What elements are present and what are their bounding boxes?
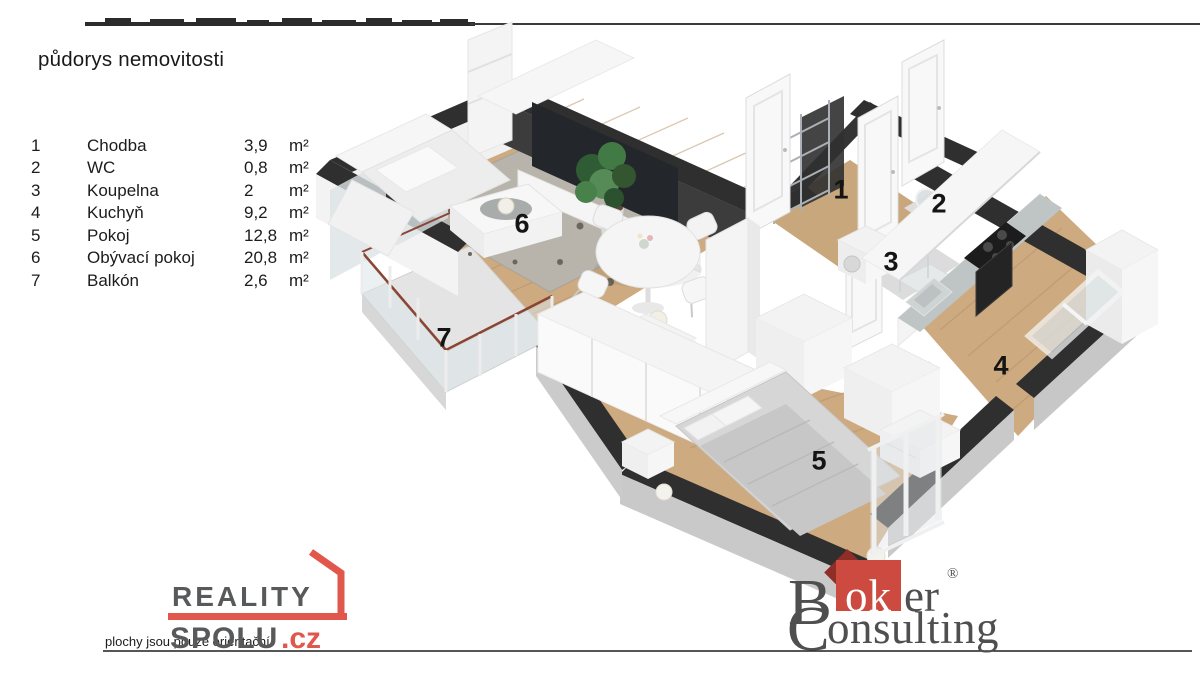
floorplan-page: půdorys nemovitosti 1 Chodba 3,9 m² 2 WC… xyxy=(0,0,1200,675)
legend-room-name: Kuchyň xyxy=(87,203,144,223)
legend-room-unit: m² xyxy=(289,158,309,178)
legend-room-number: 4 xyxy=(31,203,40,223)
dining-table xyxy=(596,216,700,288)
legend-room-name: Chodba xyxy=(87,136,147,156)
legend-row: 4 Kuchyň 9,2 m² xyxy=(0,203,360,225)
legend-room-area: 12,8 xyxy=(244,226,277,246)
legend-row: 3 Koupelna 2 m² xyxy=(0,181,360,203)
legend-room-area: 2 xyxy=(244,181,253,201)
reality-logo-word2: SPOLU xyxy=(170,622,278,656)
registered-trademark-icon: ® xyxy=(947,566,958,583)
washing-machine-door xyxy=(844,256,860,272)
door-panel xyxy=(902,40,944,186)
candle xyxy=(498,198,514,214)
legend-room-number: 3 xyxy=(31,181,40,201)
legend-room-number: 6 xyxy=(31,248,40,268)
legend-room-area: 3,9 xyxy=(244,136,268,156)
room-label-wc: 2 xyxy=(931,189,946,220)
reality-roof-shape xyxy=(311,552,341,618)
room-label-balcony: 7 xyxy=(436,323,451,354)
room-label-kitchen: 4 xyxy=(993,351,1008,382)
legend-room-area: 20,8 xyxy=(244,248,277,268)
legend-room-unit: m² xyxy=(289,271,309,291)
ball-lamp xyxy=(656,484,672,500)
legend-room-name: Pokoj xyxy=(87,226,130,246)
legend-row: 6 Obývací pokoj 20,8 m² xyxy=(0,248,360,270)
legend-row: 2 WC 0,8 m² xyxy=(0,158,360,180)
reality-logo-underline xyxy=(168,613,347,620)
legend-room-unit: m² xyxy=(289,136,309,156)
legend-row: 7 Balkón 2,6 m² xyxy=(0,271,360,293)
reality-logo-word1: REALITY xyxy=(172,581,313,613)
legend-room-name: WC xyxy=(87,158,115,178)
broker-logo-onsulting: onsulting xyxy=(827,602,999,654)
legend-room-number: 7 xyxy=(31,271,40,291)
legend-row: 5 Pokoj 12,8 m² xyxy=(0,226,360,248)
legend-room-name: Balkón xyxy=(87,271,139,291)
room-label-hallway: 1 xyxy=(833,175,848,206)
door-panel xyxy=(746,74,790,236)
reality-logo-tld: .cz xyxy=(281,622,321,656)
legend-room-unit: m² xyxy=(289,181,309,201)
room-label-bedroom: 5 xyxy=(811,446,826,477)
room-label-living-room: 6 xyxy=(514,209,529,240)
floorplan-render xyxy=(0,0,1200,675)
legend-room-name: Obývací pokoj xyxy=(87,248,195,268)
page-title: půdorys nemovitosti xyxy=(38,48,224,72)
legend-room-number: 5 xyxy=(31,226,40,246)
legend-room-name: Koupelna xyxy=(87,181,159,201)
legend-room-area: 9,2 xyxy=(244,203,268,223)
legend-room-unit: m² xyxy=(289,203,309,223)
legend-room-area: 0,8 xyxy=(244,158,268,178)
legend-room-area: 2,6 xyxy=(244,271,268,291)
legend-row: 1 Chodba 3,9 m² xyxy=(0,136,360,158)
room-label-bathroom: 3 xyxy=(883,247,898,278)
legend-room-unit: m² xyxy=(289,248,309,268)
broker-logo-initial-c: C xyxy=(787,592,830,666)
legend-room-unit: m² xyxy=(289,226,309,246)
legend-room-number: 1 xyxy=(31,136,40,156)
legend-room-number: 2 xyxy=(31,158,40,178)
top-cropped-text-strip xyxy=(85,18,1200,26)
